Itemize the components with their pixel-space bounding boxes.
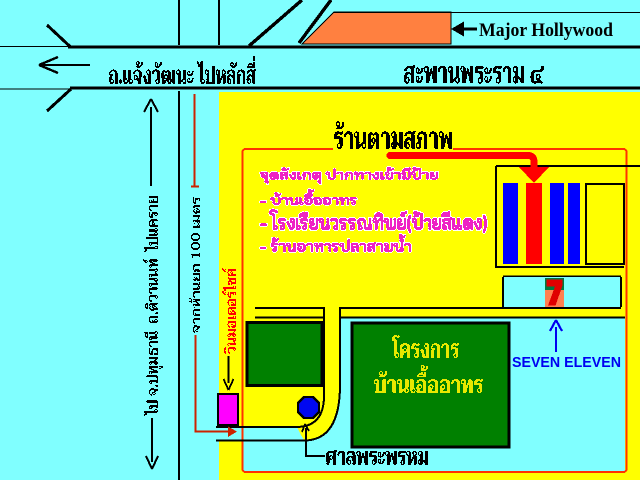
svg-text:SEVEN ELEVEN: SEVEN ELEVEN: [512, 354, 621, 371]
svg-text:Major Hollywood: Major Hollywood: [479, 21, 614, 41]
